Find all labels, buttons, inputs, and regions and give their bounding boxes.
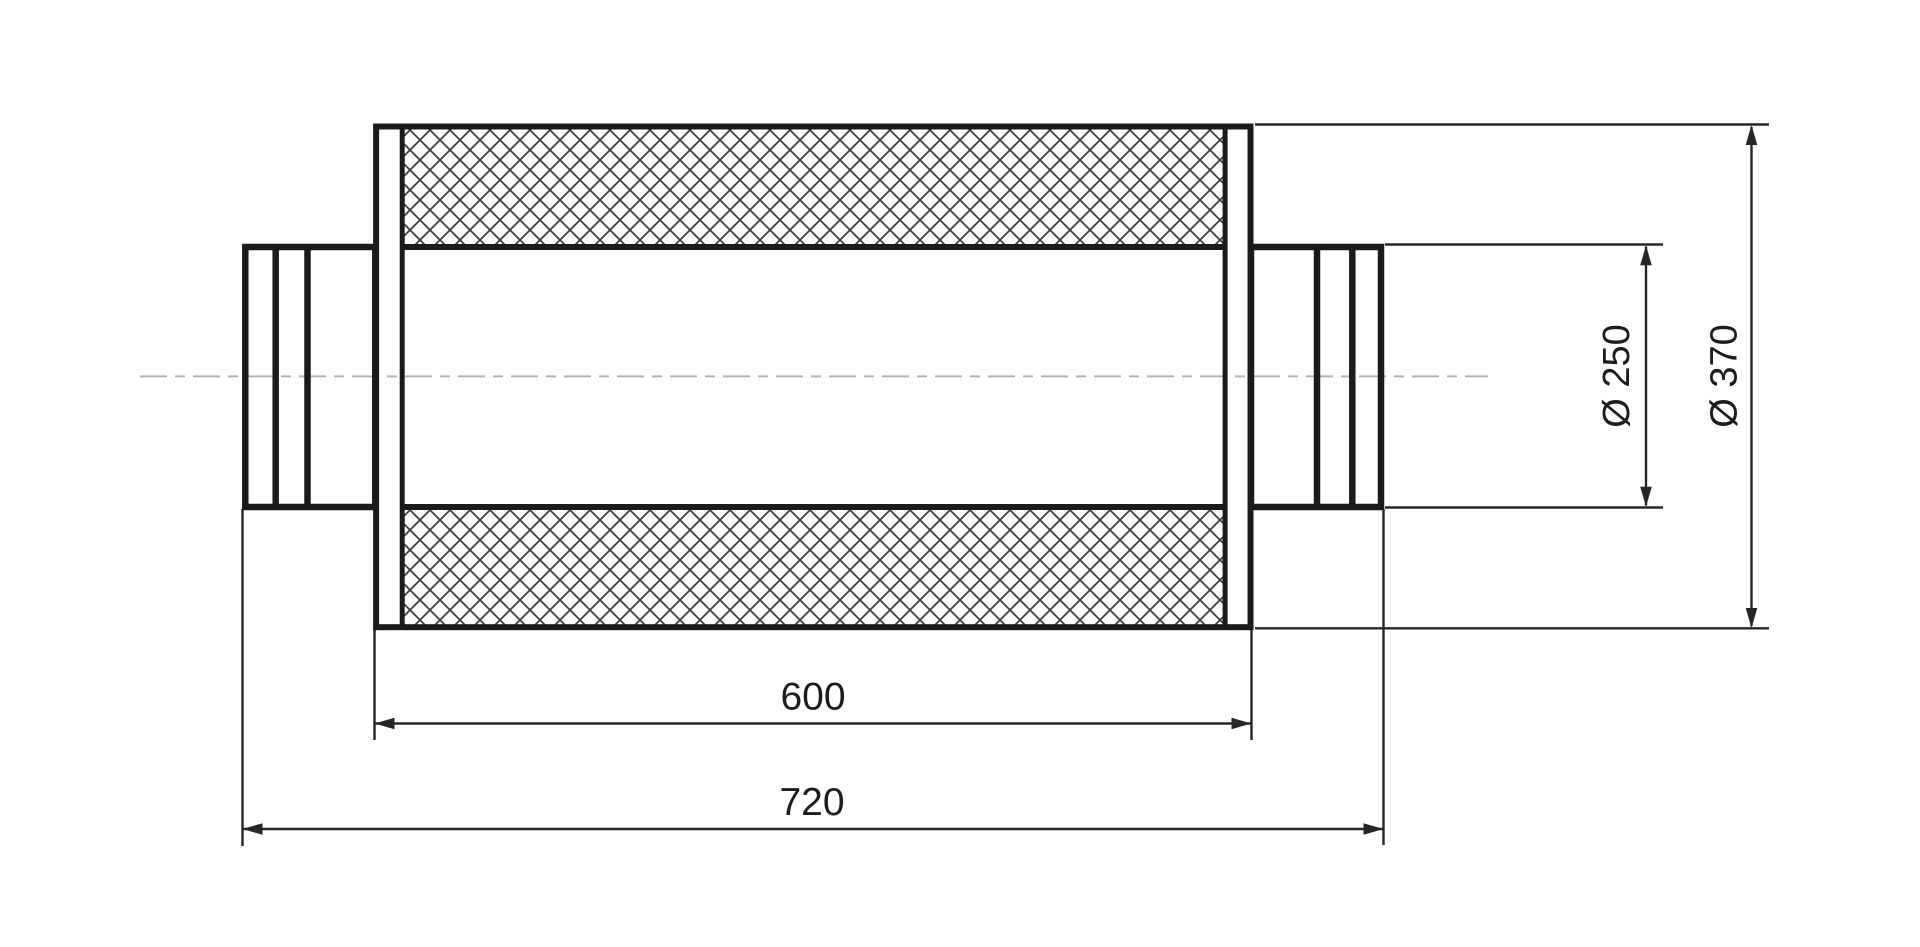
svg-text:Ø 250: Ø 250	[1596, 324, 1638, 428]
svg-text:720: 720	[779, 781, 844, 824]
svg-text:600: 600	[780, 676, 845, 719]
svg-text:Ø 370: Ø 370	[1704, 324, 1746, 428]
